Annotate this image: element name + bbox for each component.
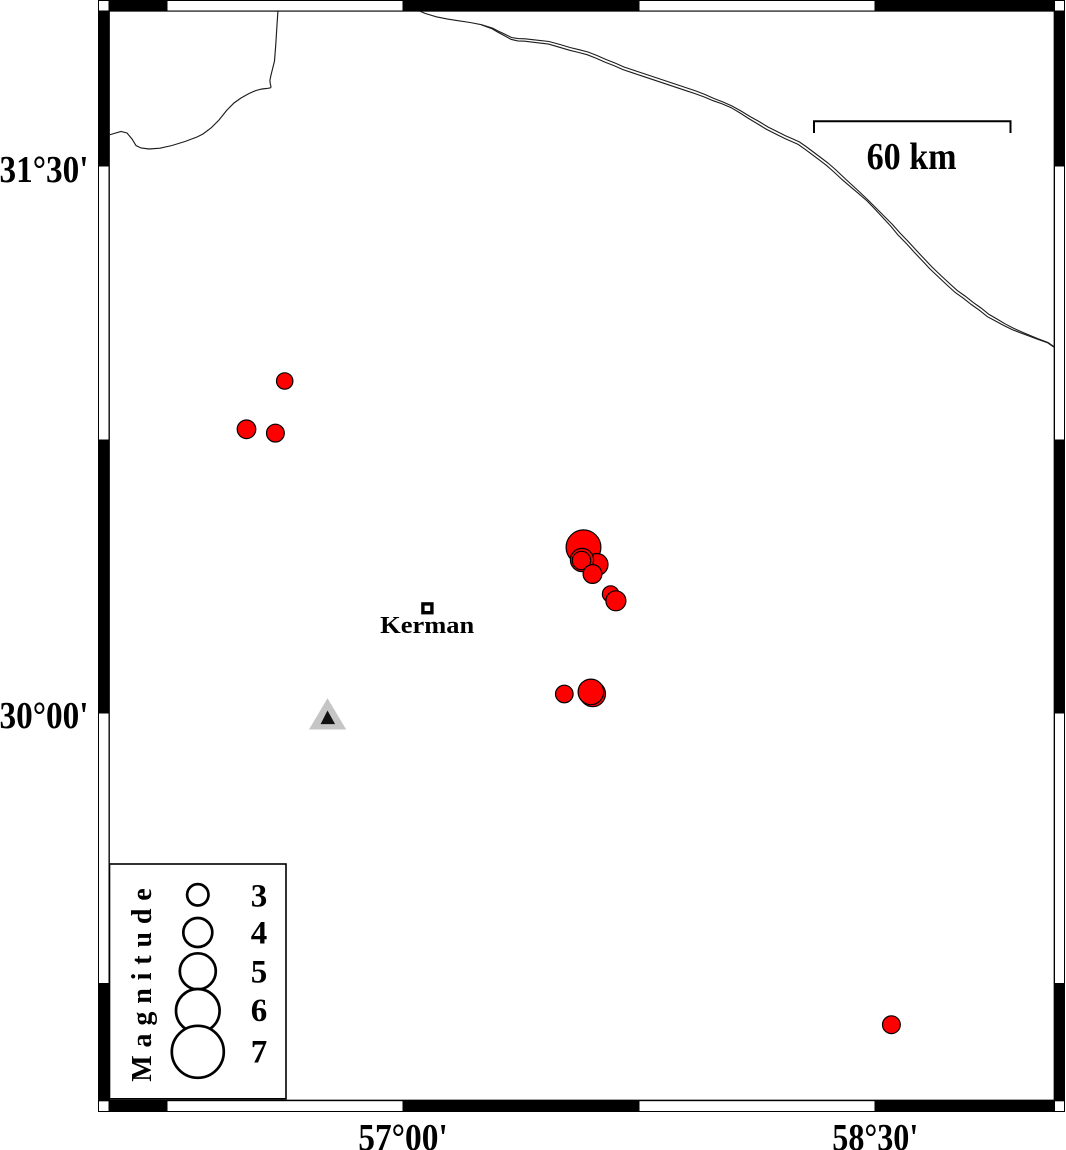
svg-text:4: 4 xyxy=(251,915,268,951)
svg-text:30°00': 30°00' xyxy=(0,695,89,737)
svg-text:57°00': 57°00' xyxy=(358,1117,448,1150)
svg-text:6: 6 xyxy=(251,993,268,1029)
svg-text:7: 7 xyxy=(251,1035,268,1071)
svg-text:60 km: 60 km xyxy=(867,136,957,178)
svg-text:31°30': 31°30' xyxy=(0,149,89,191)
svg-text:Kerman: Kerman xyxy=(380,613,474,639)
svg-text:5: 5 xyxy=(251,954,268,990)
svg-text:58°30': 58°30' xyxy=(832,1117,918,1150)
svg-text:3: 3 xyxy=(251,878,268,914)
